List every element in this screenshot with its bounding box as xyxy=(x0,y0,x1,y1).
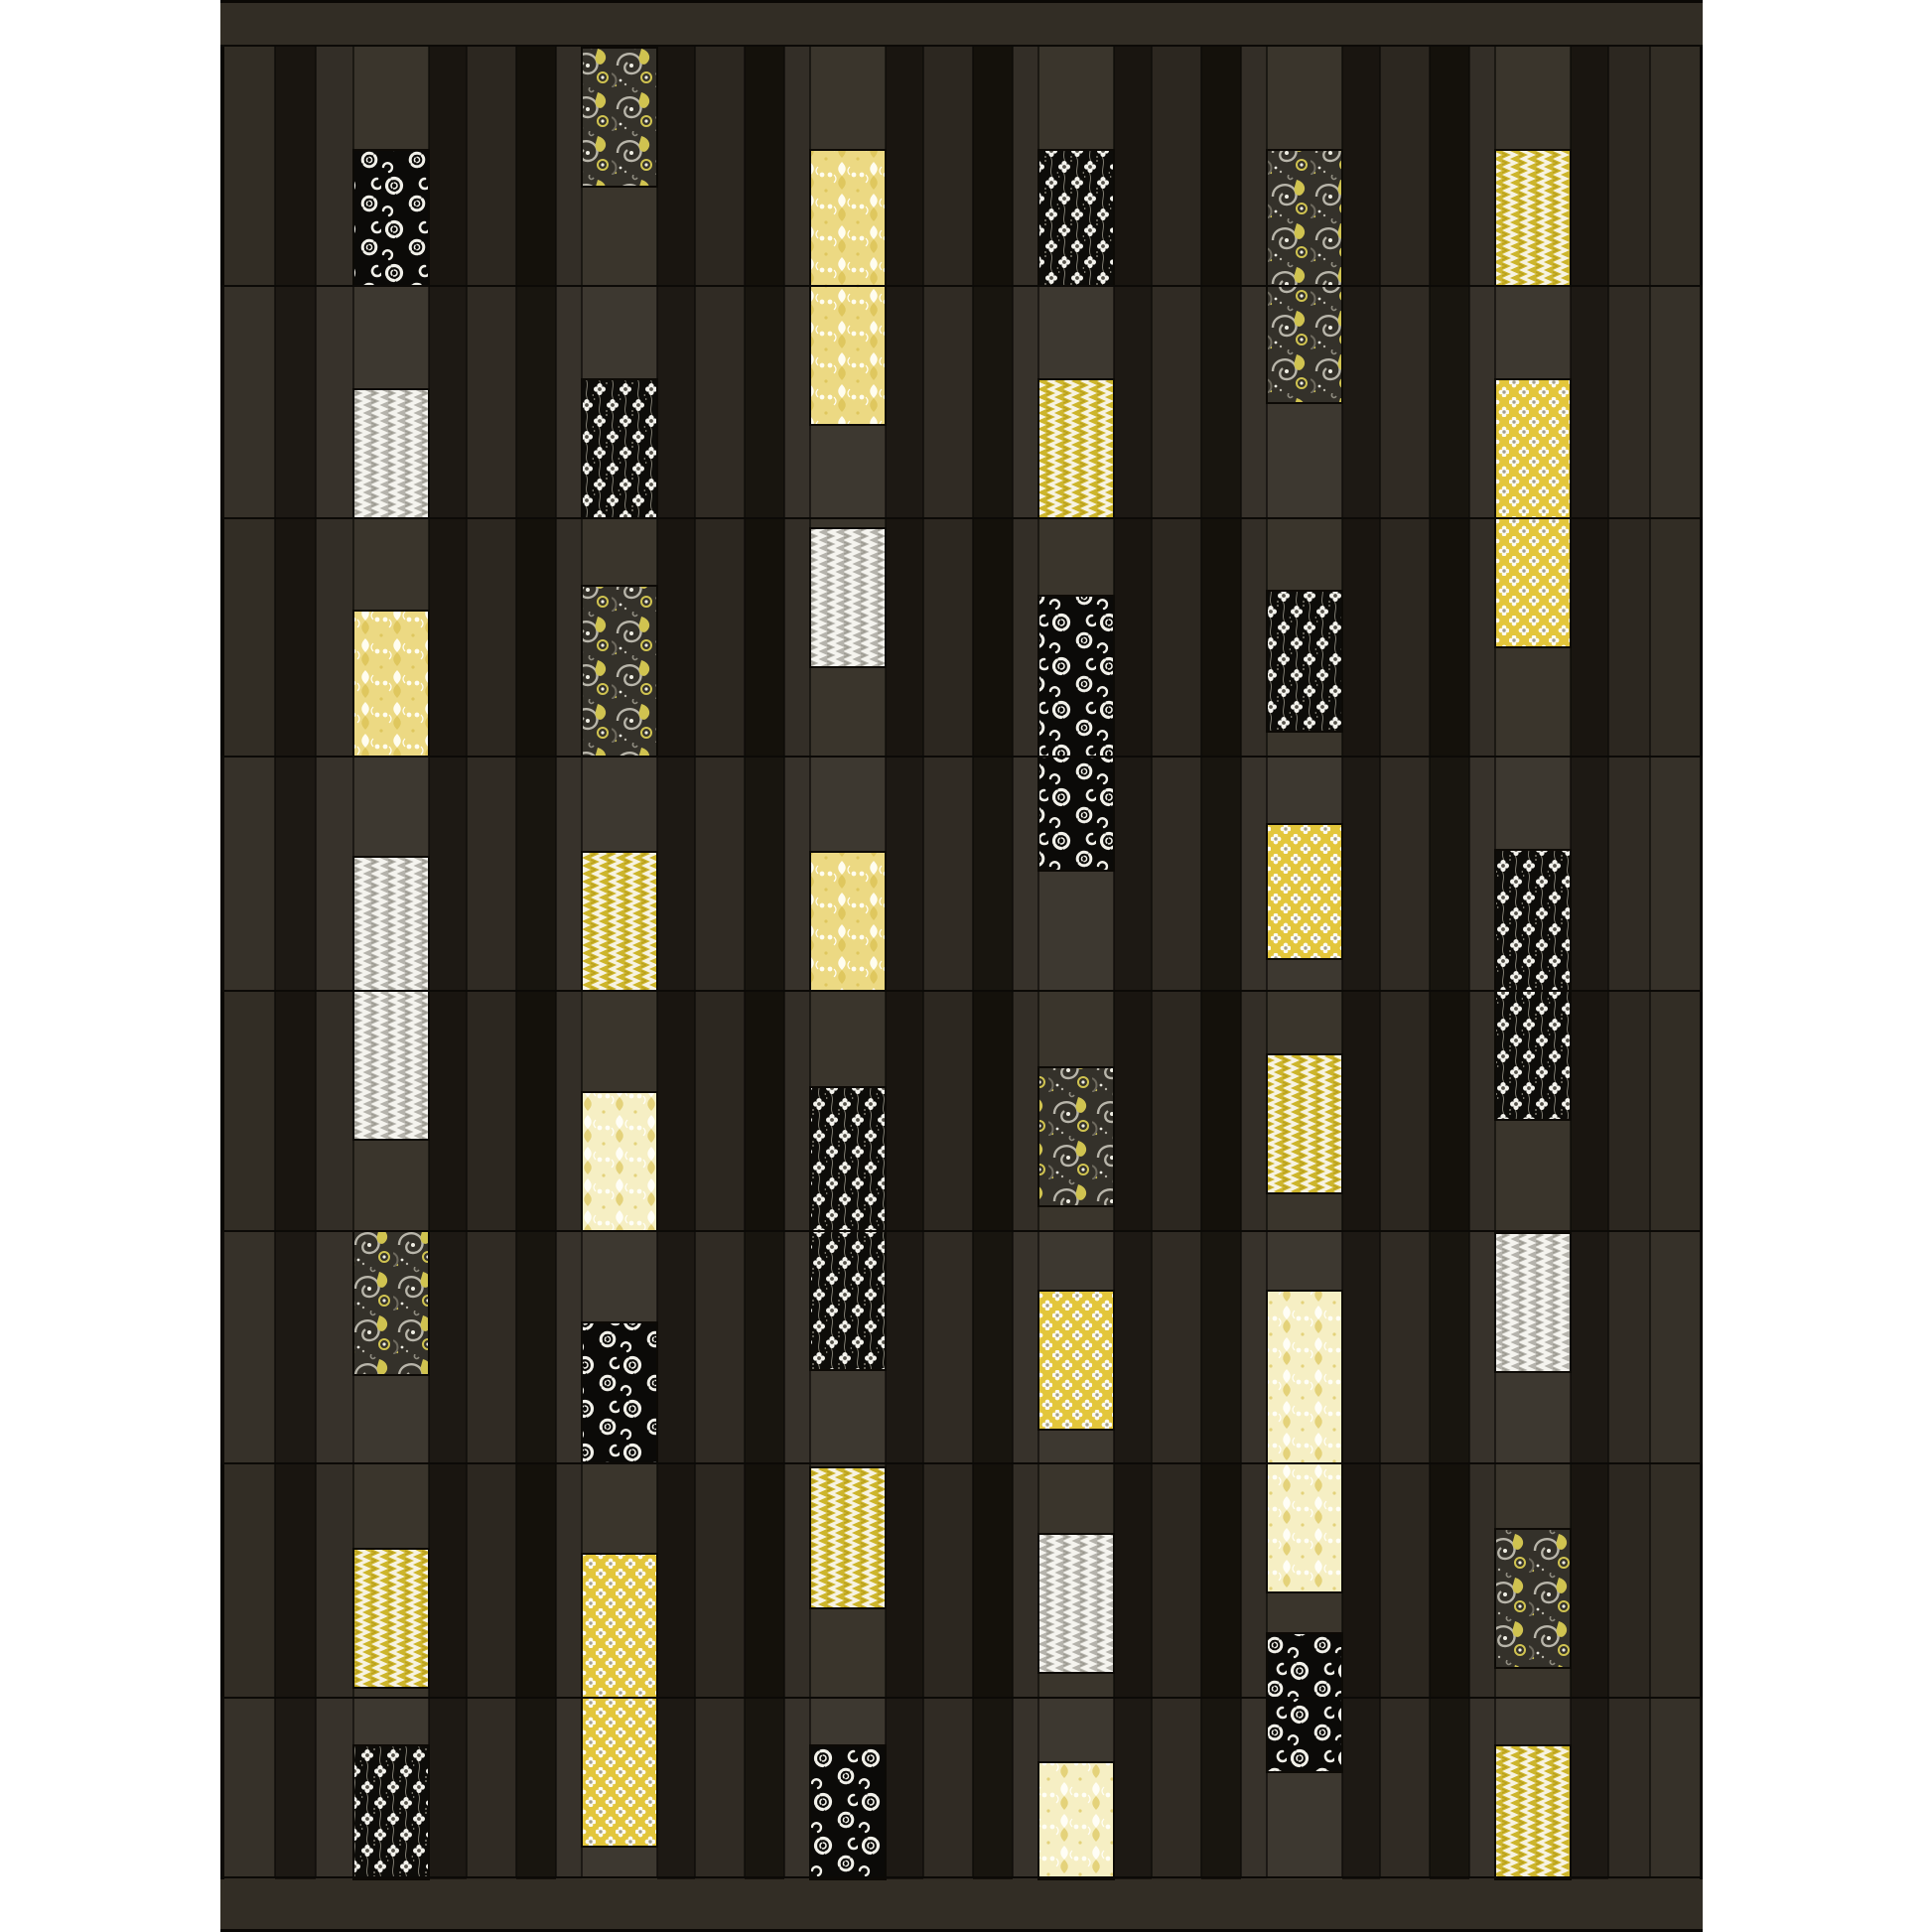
row-band-shade xyxy=(220,757,1703,991)
patch-yellow_chevron-c3r7 xyxy=(810,1467,886,1608)
patch-yellow_chevron-c1r7 xyxy=(353,1549,429,1688)
seam-vertical xyxy=(352,46,354,1877)
patch-paisley-c5r2 xyxy=(1267,286,1342,403)
seam-vertical xyxy=(1570,46,1572,1877)
seam-horizontal xyxy=(220,1462,1703,1464)
patch-yellow_damask-c3r1 xyxy=(810,150,886,286)
patch-gray_chevron-c3r3 xyxy=(810,528,886,667)
seam-vertical xyxy=(274,46,276,1877)
patch-black_circles-c1r1 xyxy=(353,150,429,286)
patch-black_flowers-c2r2 xyxy=(582,379,657,518)
patch-yellow_flowers-c2r7 xyxy=(582,1554,657,1698)
patch-gray_chevron-c1r4 xyxy=(353,857,429,991)
seam-vertical xyxy=(1266,46,1268,1877)
patch-black_flowers-c5r3 xyxy=(1267,591,1342,732)
patch-yellow_flowers-c5r4 xyxy=(1267,824,1342,959)
patch-yellow_flowers-c2r8 xyxy=(582,1698,657,1847)
seam-vertical xyxy=(885,46,887,1877)
seam-vertical xyxy=(744,46,746,1877)
patch-black_flowers-c3r6 xyxy=(810,1231,886,1370)
seam-horizontal xyxy=(220,285,1703,287)
seam-vertical xyxy=(555,46,557,1877)
seam-horizontal xyxy=(220,990,1703,992)
seam-horizontal xyxy=(220,517,1703,519)
patch-yellow_chevron-c2r4 xyxy=(582,852,657,991)
seam-vertical xyxy=(315,46,317,1877)
patch-paisley-c1r6 xyxy=(353,1231,429,1375)
quilt-border-band xyxy=(220,3,1703,46)
patch-black_flowers-c4r1 xyxy=(1038,150,1114,286)
seam-vertical xyxy=(466,46,468,1877)
patch-yellow_damask-c3r4 xyxy=(810,852,886,991)
seam-vertical xyxy=(694,46,696,1877)
patch-cream_damask-c5r7 xyxy=(1267,1463,1342,1592)
patch-paisley-c2r1 xyxy=(582,48,657,187)
seam-vertical xyxy=(1379,46,1381,1877)
patch-black_flowers-c1r8 xyxy=(353,1745,429,1879)
patch-yellow_chevron-c5r5 xyxy=(1267,1054,1342,1193)
seam-vertical xyxy=(581,46,583,1877)
row-band-shade xyxy=(220,1698,1703,1877)
seam-horizontal xyxy=(220,756,1703,758)
seam-vertical xyxy=(1240,46,1242,1877)
patch-yellow_flowers-c4r6 xyxy=(1038,1291,1114,1430)
row-band-shade xyxy=(220,286,1703,518)
seam-vertical xyxy=(1151,46,1153,1877)
seam-vertical xyxy=(1429,46,1431,1877)
patch-black_circles-c2r6 xyxy=(582,1322,657,1463)
patch-yellow_flowers-c6r3 xyxy=(1495,518,1571,647)
patch-yellow_chevron-c6r8 xyxy=(1495,1745,1571,1879)
seam-vertical xyxy=(922,46,924,1877)
quilt-design-image xyxy=(0,0,1932,1932)
seam-vertical xyxy=(1649,46,1651,1877)
seam-vertical xyxy=(1341,46,1343,1877)
patch-paisley-c4r5 xyxy=(1038,1067,1114,1206)
patch-gray_chevron-c6r6 xyxy=(1495,1233,1571,1372)
seam-vertical xyxy=(783,46,785,1877)
patch-gray_chevron-c1r5 xyxy=(353,991,429,1140)
patch-yellow_chevron-c6r1 xyxy=(1495,150,1571,286)
seam-vertical xyxy=(1200,46,1202,1877)
seam-horizontal xyxy=(220,1230,1703,1232)
seam-vertical xyxy=(1494,46,1496,1877)
seam-vertical xyxy=(1607,46,1609,1877)
patch-yellow_damask-c1r3 xyxy=(353,611,429,757)
seam-vertical xyxy=(1012,46,1014,1877)
seam-vertical xyxy=(972,46,974,1877)
quilt-graphic xyxy=(0,0,1932,1932)
patch-cream_damask-c5r6 xyxy=(1267,1291,1342,1463)
patch-cream_damask-c4r8 xyxy=(1038,1762,1114,1879)
seam-horizontal xyxy=(220,1697,1703,1699)
patch-yellow_flowers-c6r2 xyxy=(1495,379,1571,518)
patch-black_circles-c3r8 xyxy=(810,1745,886,1879)
patch-paisley-c6r7 xyxy=(1495,1529,1571,1668)
patch-paisley-c2r3 xyxy=(582,586,657,757)
patch-yellow_chevron-c4r2 xyxy=(1038,379,1114,518)
seam-vertical xyxy=(809,46,811,1877)
seam-vertical xyxy=(1037,46,1039,1877)
seam-vertical xyxy=(428,46,430,1877)
patch-yellow_damask-c3r2 xyxy=(810,286,886,425)
patch-black_circles-c4r4 xyxy=(1038,757,1114,871)
patch-cream_damask-c2r5 xyxy=(582,1092,657,1231)
seam-horizontal xyxy=(220,1876,1703,1878)
patch-black_flowers-c3r5 xyxy=(810,1087,886,1231)
patch-paisley-c5r1 xyxy=(1267,150,1342,286)
seam-horizontal xyxy=(220,45,1703,47)
patch-black_flowers-c6r5 xyxy=(1495,991,1571,1120)
row-band-shade xyxy=(220,1231,1703,1463)
patch-gray_chevron-c4r7 xyxy=(1038,1534,1114,1673)
quilt-border-band xyxy=(220,1879,1703,1929)
quilt-binding-band xyxy=(220,0,1703,3)
seam-vertical xyxy=(1468,46,1470,1877)
seam-vertical xyxy=(656,46,658,1877)
patch-gray_chevron-c1r2 xyxy=(353,389,429,518)
patch-black_flowers-c6r4 xyxy=(1495,850,1571,991)
patch-black_circles-c4r3 xyxy=(1038,596,1114,757)
patch-black_circles-c5r8 xyxy=(1267,1633,1342,1772)
seam-vertical xyxy=(515,46,517,1877)
seam-vertical xyxy=(1113,46,1115,1877)
